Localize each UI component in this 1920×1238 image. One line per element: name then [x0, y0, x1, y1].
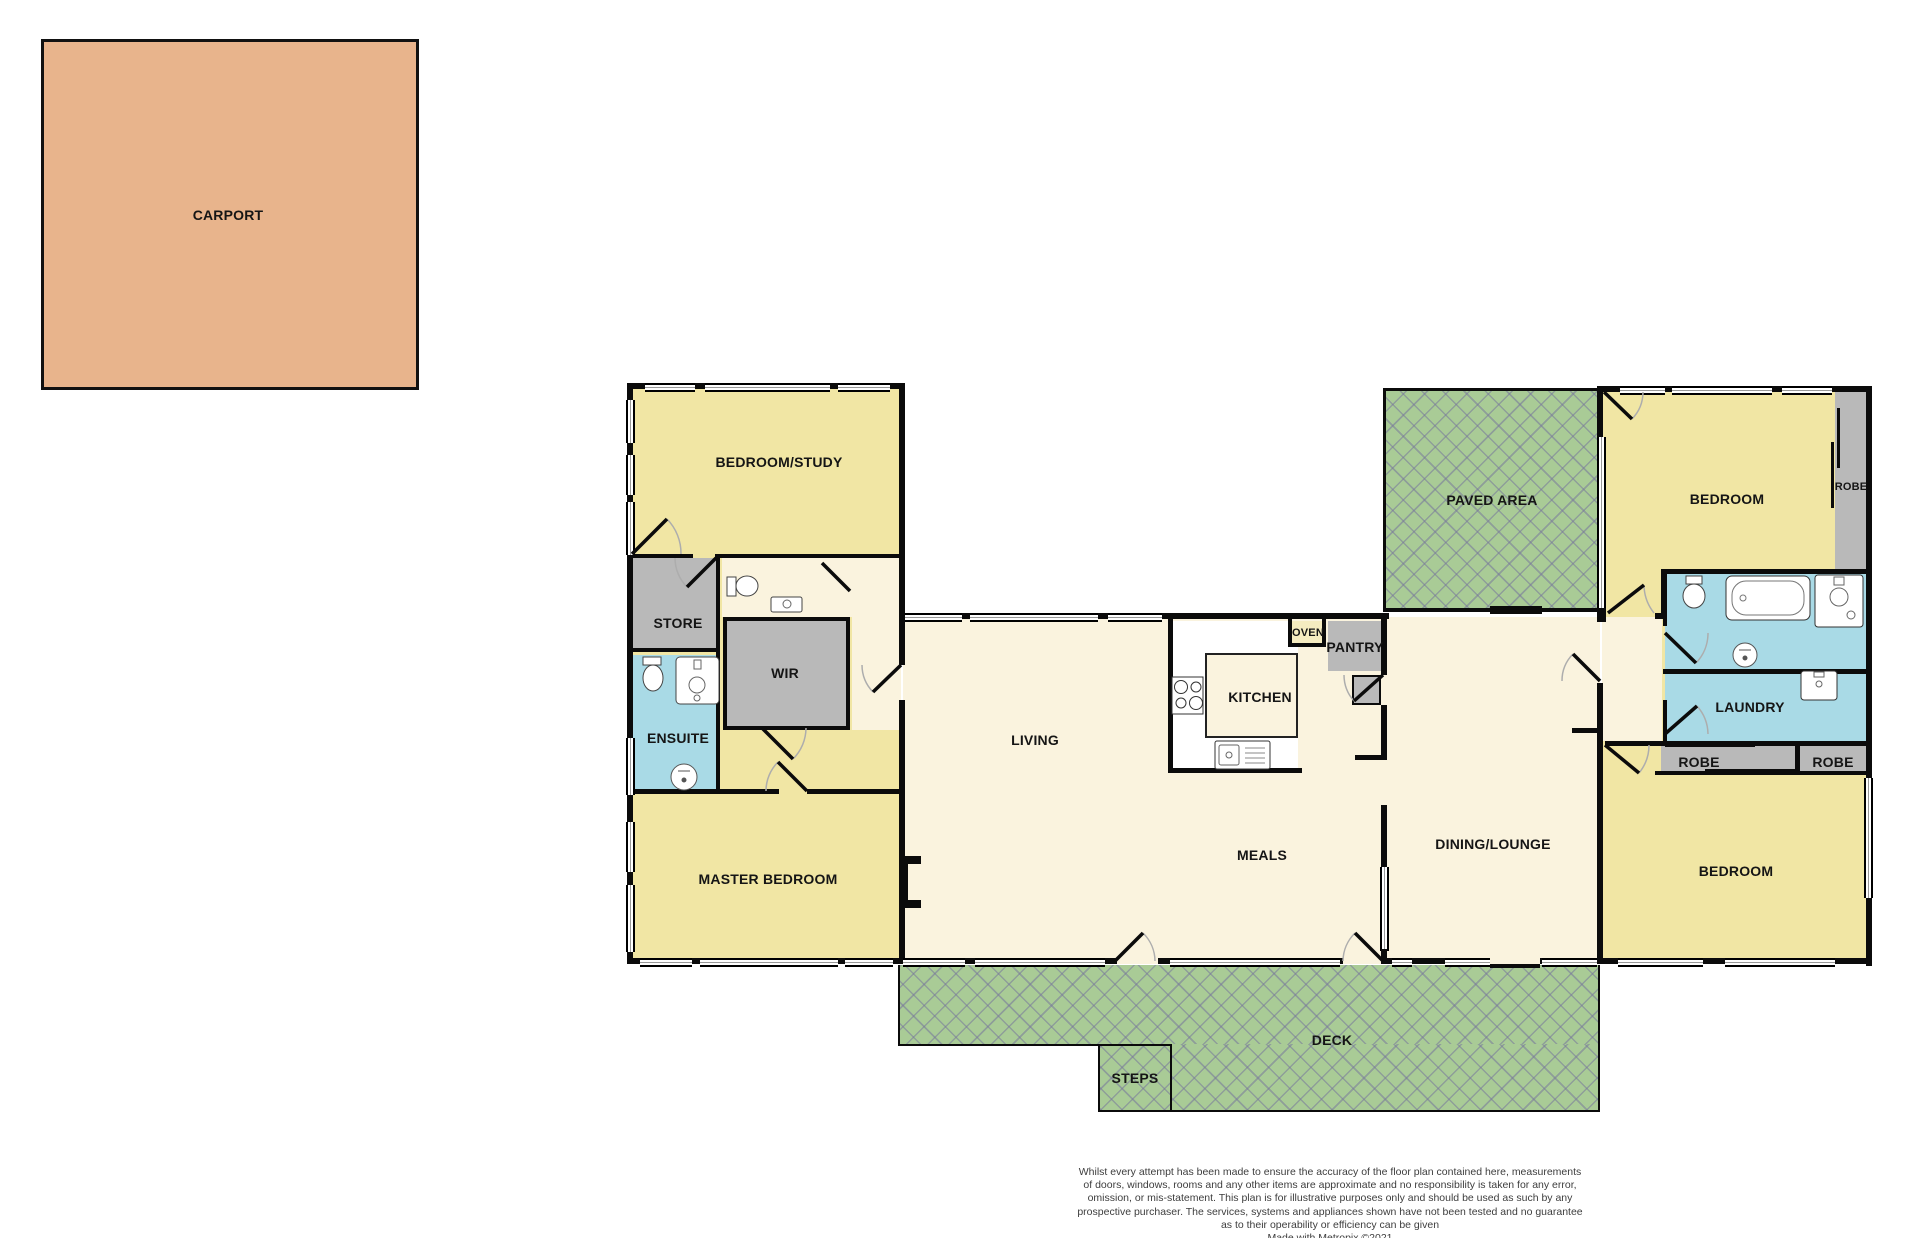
window: [1445, 958, 1490, 967]
bedstudy-wall-bottom-1: [629, 554, 693, 558]
window: [1725, 958, 1835, 967]
deck-outline-right: [1598, 965, 1600, 1112]
window: [1392, 958, 1412, 967]
ensuite-label: ENSUITE: [647, 730, 709, 746]
window: [905, 613, 962, 622]
master-bedroom-label: MASTER BEDROOM: [699, 871, 838, 887]
meals-dining-window: [1380, 867, 1389, 951]
window: [970, 613, 1098, 622]
window: [626, 822, 635, 872]
leftwing-wall-right-1: [899, 383, 905, 556]
paved-outline-top: [1383, 388, 1599, 391]
door-opening: [1343, 958, 1381, 964]
rightwing-wall-left-2: [1597, 608, 1606, 622]
wc-hall-floor: [722, 558, 901, 617]
laundry-wall-top: [1663, 669, 1872, 674]
master-wall-top-2: [807, 789, 903, 794]
deck-lower-region: [1100, 1044, 1598, 1112]
window: [903, 958, 965, 967]
linen-closet: [1352, 675, 1381, 705]
window: [975, 958, 1105, 967]
dining-wall-stub: [1572, 728, 1599, 733]
window: [1618, 958, 1703, 967]
floor-plan: CARPORT BEDROOM/STUDY STORE WIR ENSUITE …: [0, 0, 1920, 1238]
robe-right-label: ROBE: [1812, 754, 1853, 770]
meals-dining-wall-1: [1381, 705, 1387, 760]
window: [1542, 958, 1597, 967]
bedroom-study-label: BEDROOM/STUDY: [715, 454, 842, 470]
laundry-label: LAUNDRY: [1715, 699, 1784, 715]
bathroom-room: [1665, 574, 1867, 669]
meals-dining-wall-2: [1381, 805, 1387, 867]
wir-label: WIR: [771, 665, 799, 681]
window: [1864, 778, 1873, 898]
meals-label: MEALS: [1237, 847, 1287, 863]
paved-side-window: [1597, 437, 1606, 608]
wir-hall-floor: [852, 617, 901, 730]
bathroom-wall-top: [1663, 569, 1872, 574]
window: [845, 958, 893, 967]
rightwing-wall-left-3: [1597, 683, 1603, 964]
window: [640, 958, 692, 967]
leftwing-wall-right-3: [899, 700, 905, 964]
window: [700, 958, 838, 967]
window: [626, 502, 635, 555]
meals-dining-stub: [1355, 755, 1383, 760]
oven-label: OVEN: [1292, 627, 1324, 639]
window: [626, 738, 635, 795]
kitchen-label: KITCHEN: [1228, 689, 1292, 705]
window: [1782, 386, 1832, 395]
paved-outline-left: [1383, 388, 1386, 612]
master-wall-top-1: [627, 789, 779, 794]
window: [626, 400, 635, 443]
deck-outline-left: [898, 965, 900, 1046]
bedstudy-wall-bottom-2: [715, 554, 903, 558]
steps-label: STEPS: [1112, 1070, 1159, 1086]
deck-upper-region: [900, 965, 1598, 1046]
deck-outline-bottomright: [1170, 1110, 1600, 1112]
bathroom-wall-left: [1663, 574, 1667, 626]
window: [1620, 386, 1665, 395]
window: [1170, 958, 1340, 967]
kitchen-wall-left: [1168, 617, 1173, 773]
store-room: [631, 558, 720, 652]
paved-slider-bar: [1490, 606, 1542, 614]
pantry-label: PANTRY: [1326, 639, 1383, 655]
window: [645, 383, 695, 392]
deck-label: DECK: [1312, 1032, 1352, 1048]
kitchen-wall-bottom: [1168, 768, 1302, 773]
window: [626, 455, 635, 495]
robe-top-slider-1: [1837, 408, 1840, 468]
window: [838, 383, 890, 392]
door-opening: [1117, 958, 1158, 964]
robe-left-slider-1: [1665, 744, 1755, 747]
robe-left-label: ROBE: [1678, 754, 1719, 770]
robe-top-label: ROBE: [1835, 481, 1868, 493]
window: [705, 383, 830, 392]
meals-dining-wall-3: [1381, 949, 1387, 964]
disclaimer-text: Whilst every attempt has been made to en…: [1030, 1166, 1630, 1238]
dining-lounge-label: DINING/LOUNGE: [1435, 836, 1550, 852]
carport-label: CARPORT: [193, 207, 264, 223]
store-label: STORE: [654, 615, 703, 631]
window: [626, 885, 635, 952]
paved-area-label: PAVED AREA: [1446, 492, 1537, 508]
living-label: LIVING: [1011, 732, 1059, 748]
ensuite-room: [631, 655, 718, 793]
fireplace-opening: [908, 864, 921, 900]
leftwing-wall-right-2: [899, 556, 905, 665]
rightwing-wall-left-1: [1597, 386, 1603, 437]
right-hall-floor: [1602, 617, 1662, 741]
store-ensuite-divider: [629, 648, 720, 652]
laundry-wall-left: [1663, 700, 1667, 743]
oven-wall-bottom: [1288, 643, 1326, 647]
store-wall-right: [716, 554, 720, 652]
ensuite-wall-right: [716, 648, 720, 793]
bedroom-bottom-label: BEDROOM: [1699, 863, 1774, 879]
window: [1672, 386, 1772, 395]
window: [1108, 613, 1162, 622]
deck-outline-bottomleft: [898, 1044, 1100, 1046]
robe-top-slider-2: [1831, 442, 1834, 508]
sliding-door-opening: [1490, 958, 1540, 964]
bedroom-top-label: BEDROOM: [1690, 491, 1765, 507]
robe-divider-wall: [1795, 741, 1800, 775]
